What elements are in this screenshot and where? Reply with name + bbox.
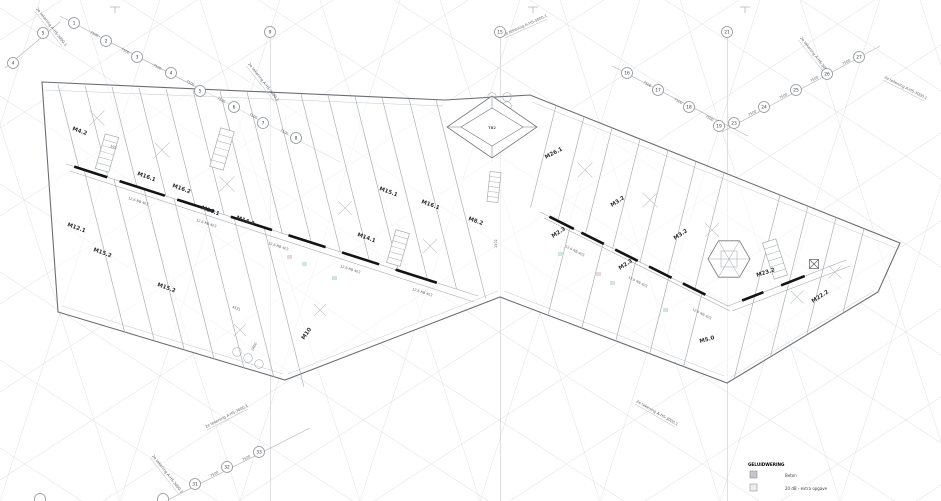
floor-plan: M4.2M16.1M16.2M16.1M14.2M12.1M15.2M15.2M… xyxy=(0,0,941,501)
legend-item-beton: Beton xyxy=(785,473,797,478)
grid-bubble xyxy=(35,494,46,501)
grid-bubble-number: 3 xyxy=(136,55,139,61)
grid-bubble-number: 4 xyxy=(12,61,15,67)
fixture xyxy=(596,272,601,276)
grid-bubble-number: 4 xyxy=(170,71,173,77)
dimension-text: 7500 xyxy=(121,47,131,54)
grid-bubble-number: 27 xyxy=(856,55,862,61)
legend-item-20db: 20 dB - extra opgave xyxy=(785,486,828,491)
grid-steep xyxy=(0,0,40,501)
reference-annotation: 2e tekening A-HS-3000.1 xyxy=(35,7,69,48)
fixture xyxy=(332,276,337,280)
grid-bubble-number: 25 xyxy=(793,88,799,94)
grid-bubble-number: 21 xyxy=(724,30,730,36)
fixture xyxy=(610,281,615,285)
grid-bubble-number: 1 xyxy=(73,21,76,27)
fixture xyxy=(287,255,292,259)
grid-bubble-number: 2 xyxy=(105,39,108,45)
grid-bubble-number: 23 xyxy=(731,121,737,127)
grid-bubble-number: 26 xyxy=(824,72,830,78)
core-label: TB2 xyxy=(488,126,496,130)
grid-bubble-number: 8 xyxy=(295,136,298,142)
grid-bubble xyxy=(158,494,169,501)
drawing-canvas: M4.2M16.1M16.2M16.1M14.2M12.1M15.2M15.2M… xyxy=(0,0,941,501)
legend-title: GELUIDWERING xyxy=(748,462,785,467)
fixture xyxy=(663,308,668,312)
grid-bubble-number: 17 xyxy=(655,88,661,94)
reference-annotation: 2e tekening A-HS-3000.1 xyxy=(502,13,548,37)
reference-annotation: 2e tekening A-HS-3000.1 xyxy=(636,399,680,427)
grid-bubble-number: 32 xyxy=(224,465,230,471)
dimension-text: 7500 xyxy=(186,79,196,86)
grid-bubble-number: 19 xyxy=(716,124,722,130)
reference-leader xyxy=(150,458,178,494)
dimension-text: 1502 xyxy=(494,239,498,248)
grid-diagonal xyxy=(0,0,941,91)
fixture xyxy=(558,252,563,256)
grid-bubble-number: 24 xyxy=(761,105,767,111)
grid-steep xyxy=(920,0,941,501)
grid-bubble-number: 16 xyxy=(624,71,630,77)
dimension-text: 7500 xyxy=(643,80,652,88)
grid-bubble-number: 31 xyxy=(192,482,198,488)
dimension-text: 7500 xyxy=(242,454,252,461)
dimension-text: 7500 xyxy=(705,114,714,122)
grid-bubble-number: 6 xyxy=(233,105,236,111)
grid-bubble-number: 5 xyxy=(42,31,45,37)
grid-bubble-number: 15 xyxy=(497,30,503,36)
grid-bubble-number: 7 xyxy=(262,121,265,127)
reference-annotation: 2e tekening A-HS-3000.1 xyxy=(151,454,185,495)
grid-bubble-number: 18 xyxy=(686,105,692,111)
legend-swatch-beton xyxy=(750,471,757,478)
grid-bubble-number: 9 xyxy=(269,30,272,36)
reference-annotation: 2e tekening A-HS-3000.1 xyxy=(204,403,249,429)
dimension-text: 7500 xyxy=(842,58,852,65)
dimension-text: 7500 xyxy=(153,63,163,70)
grid-diagonal xyxy=(0,360,941,501)
grid-bubble-number: 5 xyxy=(199,89,202,95)
grid-bubble-number: 33 xyxy=(256,450,262,456)
grid-diagonal xyxy=(0,448,941,501)
dimension-text: 7500 xyxy=(90,30,100,37)
building-layer xyxy=(42,82,900,386)
legend: GELUIDWERING Beton 20 dB - extra opgave xyxy=(748,462,828,491)
grid-diagonal xyxy=(0,0,941,40)
legend-swatch-20db xyxy=(750,484,757,491)
fixture xyxy=(302,262,307,266)
